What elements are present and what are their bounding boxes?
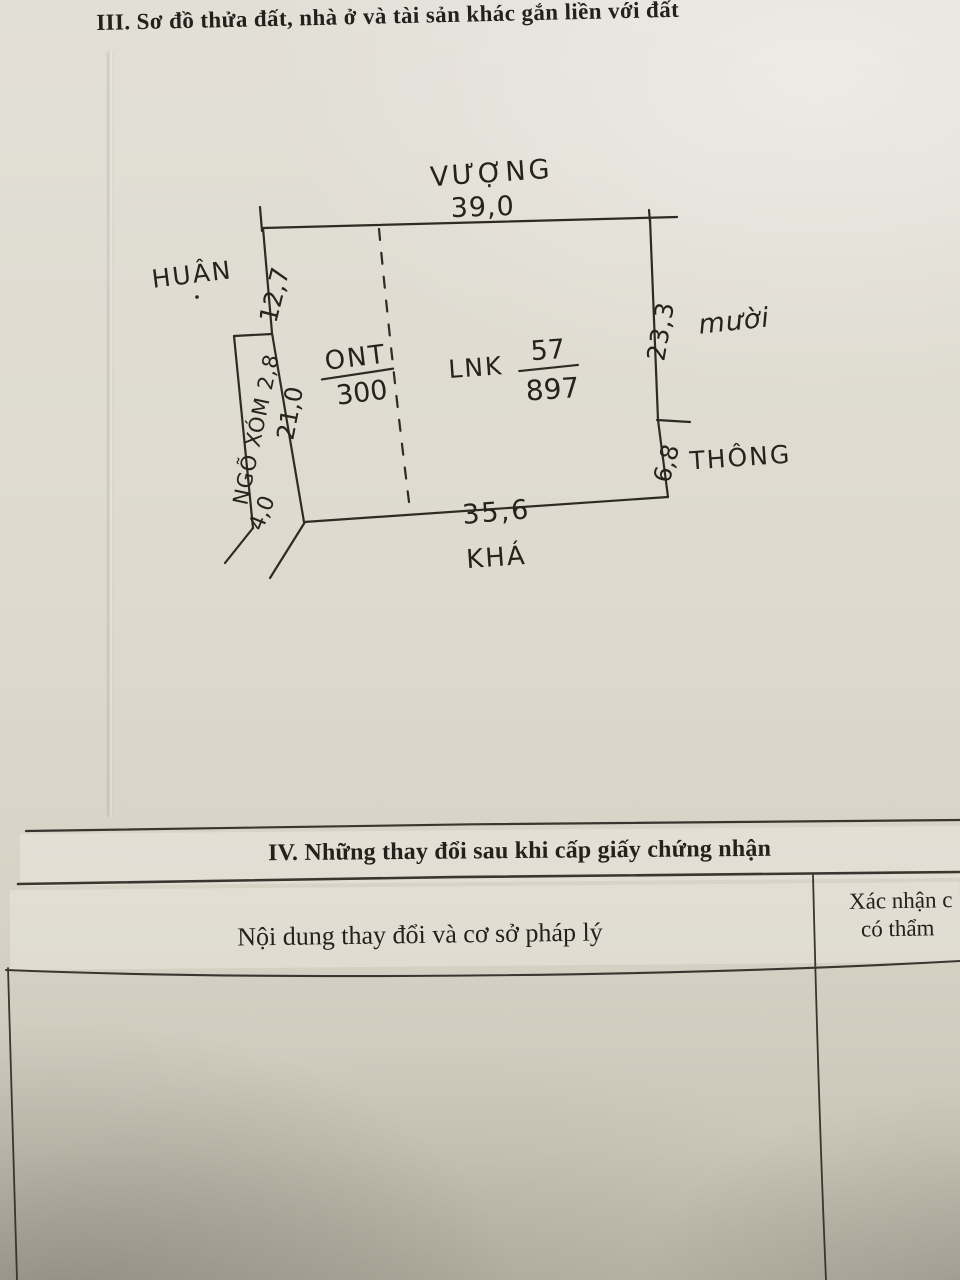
section-iv-title: IV. Những thay đổi sau khi cấp giấy chứn…: [268, 836, 771, 867]
parcel-main-code: LNK: [447, 351, 504, 384]
neighbor-top-label: VƯỢNG: [429, 154, 553, 193]
neighbor-right-lower-label: THÔNG: [688, 439, 793, 476]
table-subheader-border: [6, 961, 960, 976]
alley-mouth-outer: [225, 528, 253, 563]
dimension-bottom: 35,6: [461, 494, 532, 531]
table-column-divider: [813, 875, 826, 1280]
parcel-main-area: 897: [525, 371, 581, 408]
neighbor-left-label: HUÂN: [150, 255, 234, 294]
dimension-top: 39,0: [450, 191, 515, 224]
dimension-right-lower: 6,8: [648, 441, 685, 485]
alley-mouth-inner: [270, 522, 305, 578]
parcel-left-annotation: ONT 300: [318, 339, 398, 413]
table-column2-header-line1: Xác nhận c: [849, 887, 953, 915]
parcel-left-area: 300: [334, 375, 389, 412]
neighbor-right-upper-label: mười: [697, 302, 771, 340]
table-header-border: [18, 872, 960, 884]
plot-sketch: VƯỢNG HUÂN mười THÔNG KHÁ 39,0 12,7 21,0…: [0, 140, 960, 620]
neighbor-bottom-label: KHÁ: [465, 539, 527, 575]
section-iii-title: III. Sơ đồ thửa đất, nhà ở và tài sản kh…: [96, 0, 886, 36]
alley-top-closure: [234, 334, 272, 336]
right-edge-tick: [657, 420, 690, 422]
changes-table-grid: [0, 810, 960, 1280]
dimension-left-lower: 21,0: [271, 384, 309, 442]
ink-dot: [195, 295, 199, 299]
table-left-border: [8, 968, 17, 1280]
parcel-main-annotation: LNK 57 897: [446, 333, 580, 413]
table-top-border: [26, 820, 960, 831]
scanned-certificate-page: III. Sơ đồ thửa đất, nhà ở và tài sản kh…: [0, 0, 960, 1280]
top-left-extension-tick: [260, 207, 262, 231]
parcel-main-number: 57: [530, 334, 566, 367]
table-column2-header-line2: có thẩm: [861, 915, 935, 942]
dimension-left-upper: 12,7: [254, 264, 296, 325]
dimension-right-upper: 23,3: [641, 299, 680, 363]
